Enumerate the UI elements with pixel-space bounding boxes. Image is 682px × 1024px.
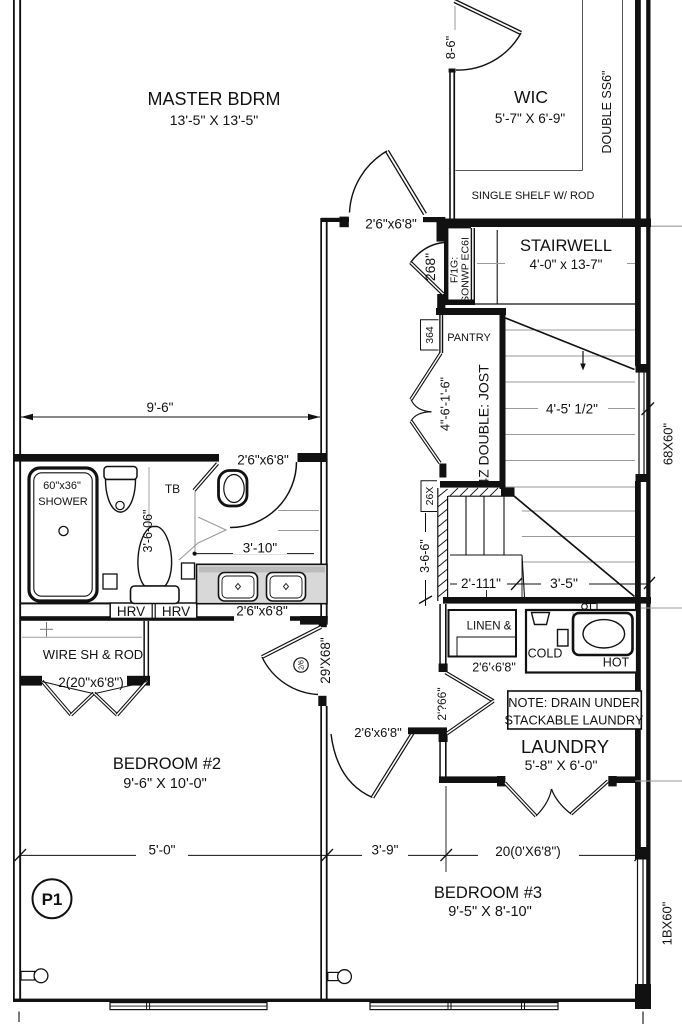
svg-text:268": 268" (422, 253, 438, 281)
svg-text:DOUBLE SS6": DOUBLE SS6" (600, 71, 614, 154)
svg-text:2'6"x6'8": 2'6"x6'8" (236, 604, 288, 619)
svg-text:5'-8" X 6'-0": 5'-8" X 6'-0" (525, 757, 598, 773)
svg-text:3'-10": 3'-10" (243, 541, 278, 556)
svg-text:3'-6-06": 3'-6-06" (141, 510, 155, 553)
svg-text:3'-5": 3'-5" (550, 575, 578, 591)
svg-text:HRV: HRV (162, 604, 190, 619)
svg-text:BEDROOM #3: BEDROOM #3 (434, 884, 542, 902)
svg-text:8-6": 8-6" (443, 35, 458, 59)
svg-text:5'-7" X 6'-9": 5'-7" X 6'-9" (495, 111, 565, 126)
svg-text:HRV: HRV (117, 604, 145, 619)
svg-text:STAIRWELL: STAIRWELL (520, 237, 612, 255)
svg-text:TB: TB (165, 482, 180, 496)
svg-text:4'-5' 1/2": 4'-5' 1/2" (546, 402, 598, 417)
svg-text:5'-0": 5'-0" (149, 843, 176, 858)
svg-text:2/6: 2/6 (299, 660, 306, 670)
svg-text:9'-6": 9'-6" (147, 400, 174, 415)
svg-text:SHOWER: SHOWER (38, 496, 88, 508)
svg-text:SONWP EC6I: SONWP EC6I (460, 237, 472, 303)
svg-text:2'6'x6'8": 2'6'x6'8" (354, 725, 402, 740)
svg-text:4"-6'-1'-6": 4"-6'-1'-6" (439, 377, 453, 431)
svg-text:4'-0" x 13-7": 4'-0" x 13-7" (530, 257, 603, 272)
svg-text:WIRE SH & ROD: WIRE SH & ROD (43, 647, 143, 662)
svg-text:BEDROOM #2: BEDROOM #2 (113, 755, 221, 773)
svg-text:4Z DOUBLE: JOST: 4Z DOUBLE: JOST (476, 364, 492, 486)
svg-text:NOTE: DRAIN UNDER: NOTE: DRAIN UNDER (508, 695, 640, 710)
svg-text:MASTER BDRM: MASTER BDRM (147, 89, 280, 109)
svg-text:2'?66": 2'?66" (435, 687, 449, 720)
svg-text:29'X68": 29'X68" (318, 637, 333, 684)
svg-text:3-6-6": 3-6-6" (418, 539, 432, 573)
svg-text:LAUNDRY: LAUNDRY (521, 736, 609, 757)
svg-text:13'-5" X 13'-5": 13'-5" X 13'-5" (170, 112, 258, 128)
svg-text:2'6"x6'8": 2'6"x6'8" (365, 217, 417, 232)
svg-text:STACKABLE LAUNDRY: STACKABLE LAUNDRY (505, 713, 644, 728)
svg-text:HOT: HOT (603, 656, 630, 670)
svg-text:COLD: COLD (528, 647, 563, 661)
svg-text:P1: P1 (42, 890, 63, 909)
svg-text:LINEN &: LINEN & (467, 621, 512, 633)
svg-text:PANTRY: PANTRY (447, 332, 491, 344)
svg-text:9'-5" X 8'-10": 9'-5" X 8'-10" (448, 904, 532, 920)
svg-text:2'6'‹6'8": 2'6'‹6'8" (472, 661, 516, 675)
svg-text:364: 364 (424, 326, 436, 344)
svg-text:1BX60": 1BX60" (660, 901, 675, 945)
svg-text:SINGLE SHELF W/ ROD: SINGLE SHELF W/ ROD (472, 190, 595, 202)
svg-text:60"x36": 60"x36" (43, 480, 81, 492)
svg-text:2'-111": 2'-111" (461, 576, 501, 591)
svg-text:9'-6" X 10'-0": 9'-6" X 10'-0" (123, 776, 207, 792)
svg-text:WIC: WIC (514, 87, 548, 107)
svg-text:26X: 26X (424, 487, 436, 506)
svg-text:3'-9": 3'-9" (372, 843, 399, 858)
svg-text:68X60": 68X60" (661, 423, 676, 466)
svg-text:20(0'X6'8"): 20(0'X6'8") (495, 844, 560, 859)
svg-text:2'6"x6'8": 2'6"x6'8" (237, 453, 289, 468)
